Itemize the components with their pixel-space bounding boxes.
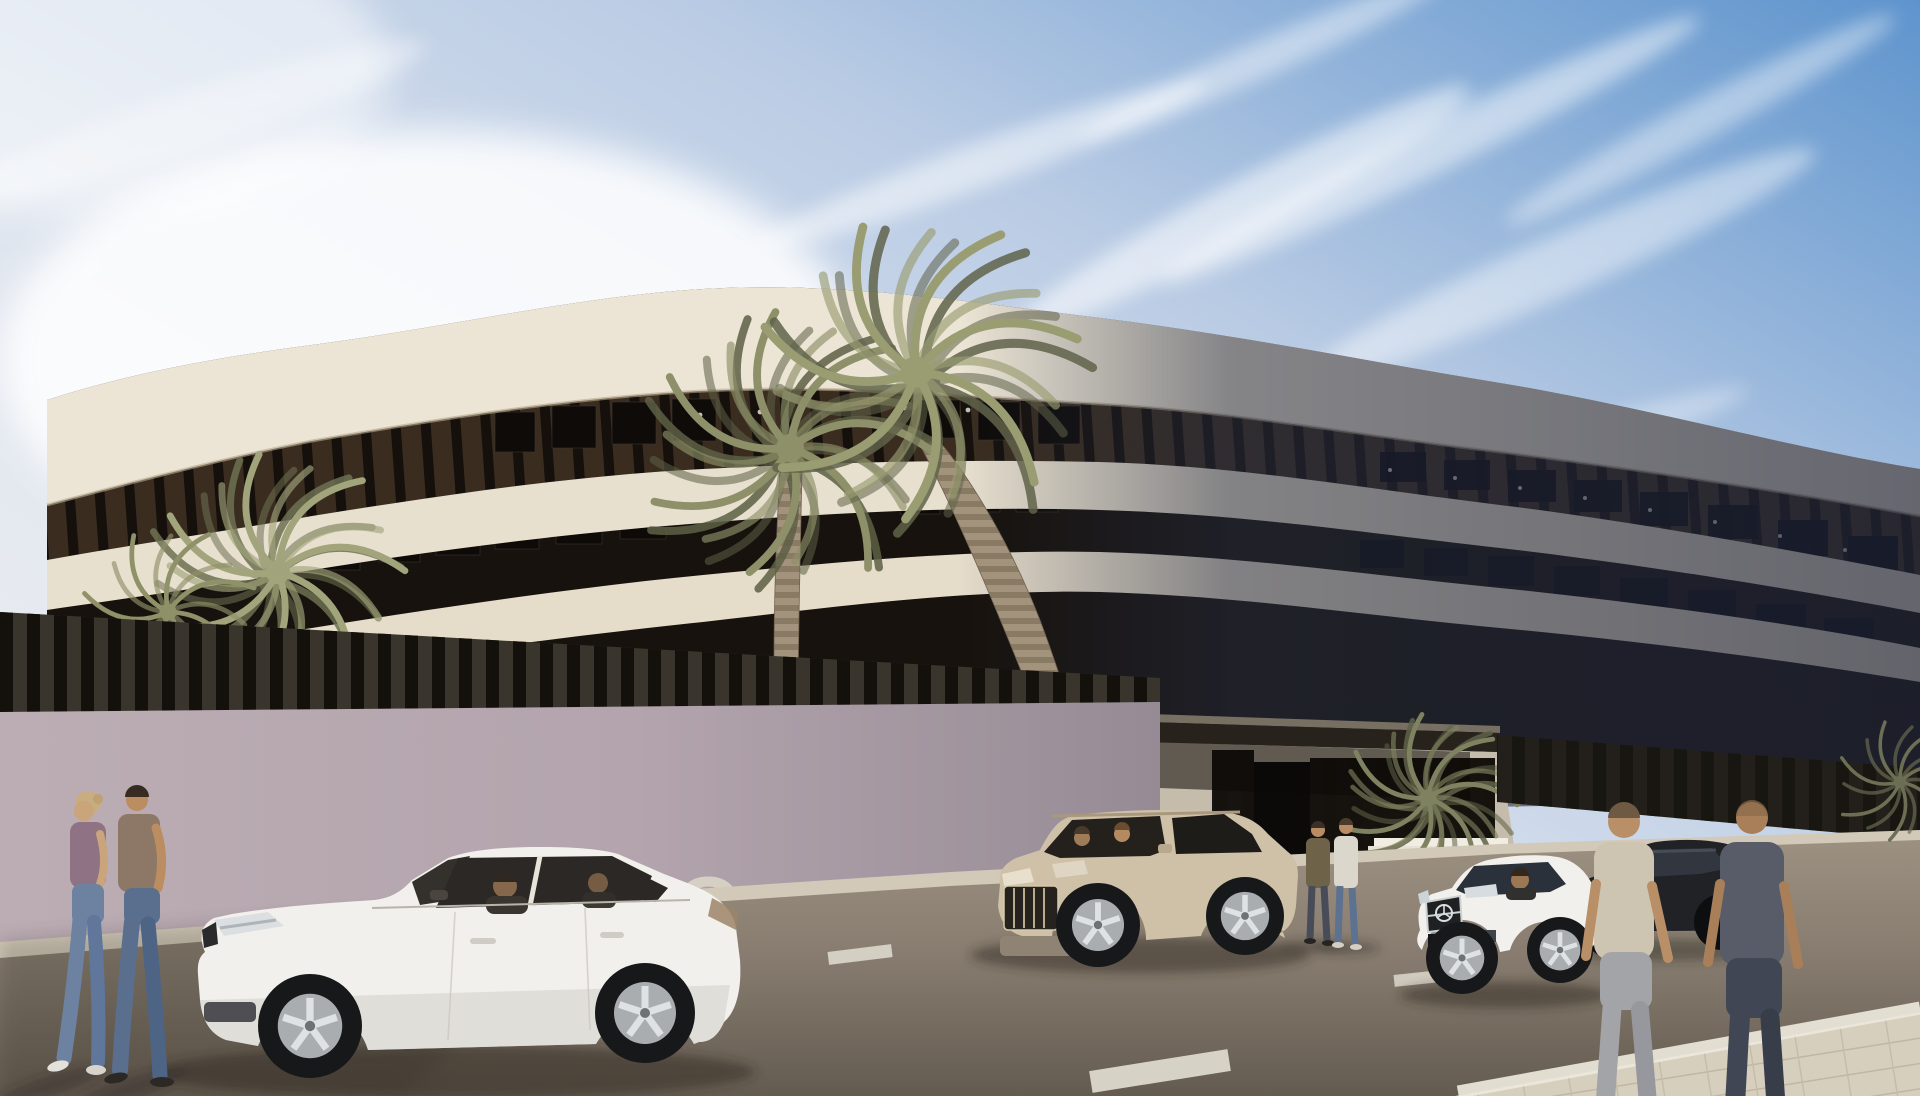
suv-wheel [1206,877,1284,955]
render-canvas: TO [0,0,1920,1096]
sedan-mirror [430,890,448,900]
mercedes-wheel [1426,922,1498,994]
suv-mirror [1158,844,1172,853]
sedan-wheel [258,974,362,1078]
suv-grille [1004,886,1058,930]
suv-wheel [1056,883,1140,967]
scene-render: TO [0,0,1920,1096]
sedan-wheel [595,963,695,1063]
sedan-door-handle [600,932,624,938]
sedan-door-handle [470,938,496,944]
sedan-side-glass [436,856,652,908]
sedan-intake [204,1002,256,1022]
